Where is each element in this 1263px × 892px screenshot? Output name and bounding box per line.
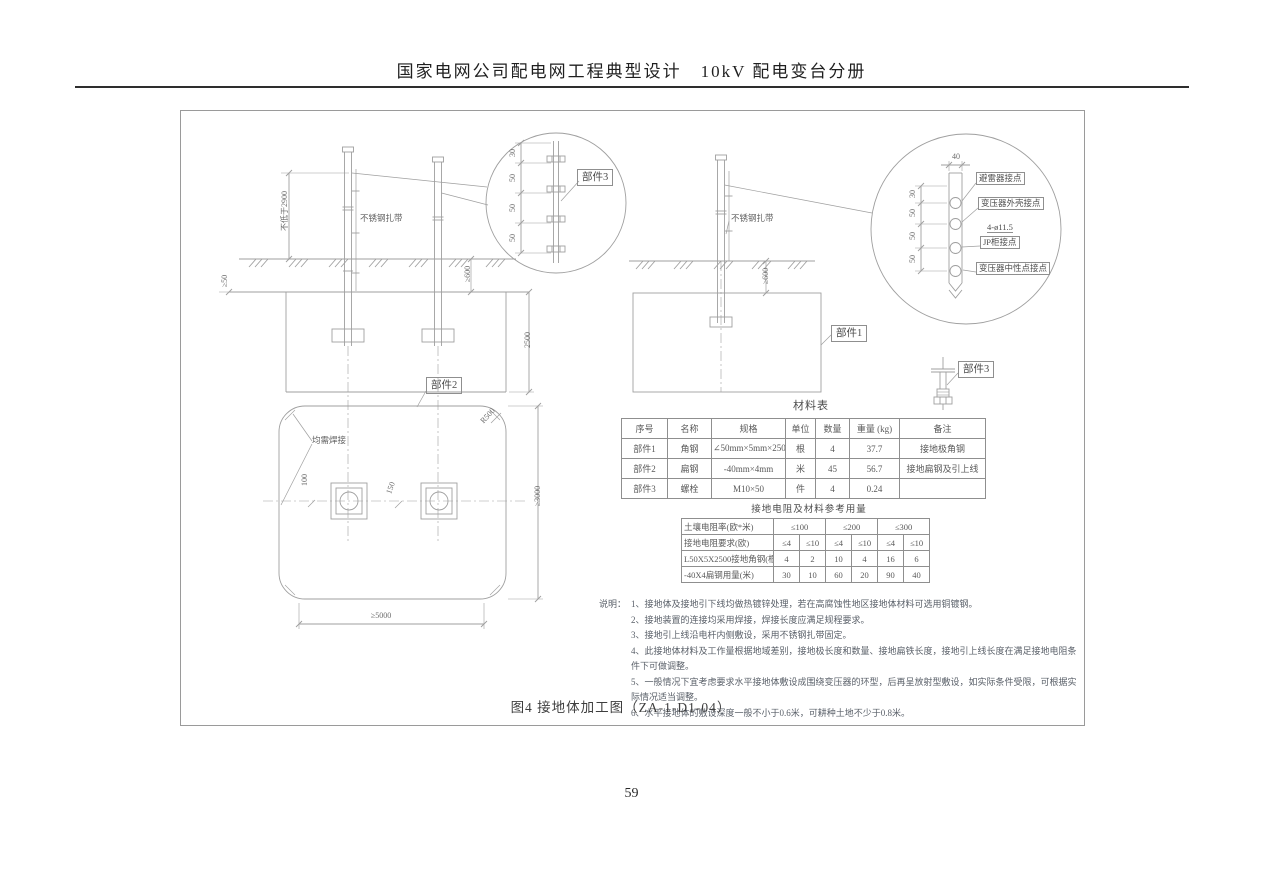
- dim-spacing-50-c1b: 50: [508, 200, 518, 216]
- dim-spacing-50-c1c: 50: [508, 230, 518, 246]
- dim-spacing-50-c2a: 50: [908, 205, 918, 221]
- material-table-title: 材料表: [621, 397, 1001, 413]
- table-row: 土壤电阻率(欧*米) ≤100 ≤200 ≤300: [682, 519, 930, 535]
- dim-min-height-2900: 不低于2900: [280, 179, 290, 243]
- dim-spacing-50-c2b: 50: [908, 228, 918, 244]
- transformer-neutral-point-label: 变压器中性点接点: [976, 262, 1050, 275]
- material-table-section: 材料表 序号 名称 规格 单位 数量 重量 (kg) 备注 部件1 角钢 ∠50…: [621, 397, 1001, 499]
- dim-ge600-left: ≥600: [463, 259, 473, 289]
- page-header-title: 国家电网公司配电网工程典型设计 10kV 配电变台分册: [0, 57, 1263, 82]
- material-table: 序号 名称 规格 单位 数量 重量 (kg) 备注 部件1 角钢 ∠50mm×5…: [621, 418, 986, 499]
- part3-label-circle1: 部件3: [577, 169, 613, 186]
- holes-spec-label: 4-ø11.5: [987, 222, 1013, 233]
- dim-spacing-50-c1a: 50: [508, 170, 518, 186]
- document-page: 国家电网公司配电网工程典型设计 10kV 配电变台分册: [0, 0, 1263, 892]
- table-row: 部件1 角钢 ∠50mm×5mm×2500mm 根 4 37.7 接地极角钢: [622, 439, 986, 459]
- part3-label-bolt: 部件3: [958, 361, 994, 378]
- table-row: 部件2 扁钢 -40mm×4mm 米 45 56.7 接地扁钢及引上线: [622, 459, 986, 479]
- drawing-frame: 不低于2900 ≥50 ≥600 不锈钢扎带 部件3 30 50 50 50 2…: [180, 110, 1085, 726]
- dim-100: 100: [300, 470, 310, 490]
- header-divider: [75, 86, 1189, 88]
- right-elevation: [629, 155, 872, 392]
- dim-40: 40: [947, 152, 965, 162]
- dim-ge3000: ≥3000: [533, 479, 543, 513]
- dim-spacing-30-c1: 30: [508, 145, 518, 161]
- arrester-point-label: 避雷器接点: [976, 172, 1025, 185]
- detail-circle-1: [486, 133, 626, 273]
- left-elevation: [219, 147, 534, 395]
- dim-ge5000: ≥5000: [351, 611, 411, 621]
- resistance-table: 土壤电阻率(欧*米) ≤100 ≤200 ≤300 接地电阻要求(欧) ≤4 ≤…: [681, 518, 930, 583]
- table-row: -40X4扁钢用量(米) 30 10 60 20 90 40: [682, 567, 930, 583]
- weld-all-label: 均需焊接: [312, 435, 346, 445]
- dim-ge50: ≥50: [220, 267, 230, 295]
- part2-label: 部件2: [426, 377, 462, 394]
- table-row: 部件3 螺栓 M10×50 件 4 0.24: [622, 479, 986, 499]
- table-row: L50X5X2500接地角钢(根) 4 2 10 4 16 6: [682, 551, 930, 567]
- note-line: 2、接地装置的连接均采用焊接，焊接长度应满足规程要求。: [631, 613, 1081, 629]
- part1-label: 部件1: [831, 325, 867, 342]
- stainless-tie-label-left: 不锈钢扎带: [360, 213, 403, 223]
- table-row: 接地电阻要求(欧) ≤4 ≤10 ≤4 ≤10 ≤4 ≤10: [682, 535, 930, 551]
- stainless-tie-label-right: 不锈钢扎带: [731, 213, 774, 223]
- jp-cabinet-point-label: JP柜接点: [980, 236, 1020, 249]
- dim-2500: 2500: [523, 325, 533, 355]
- material-table-header-row: 序号 名称 规格 单位 数量 重量 (kg) 备注: [622, 419, 986, 439]
- note-line: 1、接地体及接地引下线均做热镀锌处理，若在高腐蚀性地区接地体材料可选用铜镀钢。: [631, 597, 1081, 613]
- dim-ge600-right: ≥600: [761, 261, 771, 291]
- note-line: 4、此接地体材料及工作量根据地域差别，接地极长度和数量、接地扁铁长度，接地引上线…: [631, 644, 1081, 675]
- detail-circle-2: [871, 134, 1061, 324]
- transformer-shell-point-label: 变压器外壳接点: [978, 197, 1044, 210]
- page-number: 59: [0, 786, 1263, 802]
- note-line: 3、接地引上线沿电杆内侧敷设，采用不锈钢扎带固定。: [631, 628, 1081, 644]
- dim-spacing-50-c2c: 50: [908, 251, 918, 267]
- figure-caption: 图4 接地体加工图（ZA-1-D1-04）: [481, 696, 761, 716]
- resistance-table-title: 接地电阻及材料参考用量: [681, 501, 937, 515]
- resistance-table-section: 接地电阻及材料参考用量 土壤电阻率(欧*米) ≤100 ≤200 ≤300 接地…: [681, 501, 937, 583]
- dim-spacing-30-c2: 30: [908, 186, 918, 202]
